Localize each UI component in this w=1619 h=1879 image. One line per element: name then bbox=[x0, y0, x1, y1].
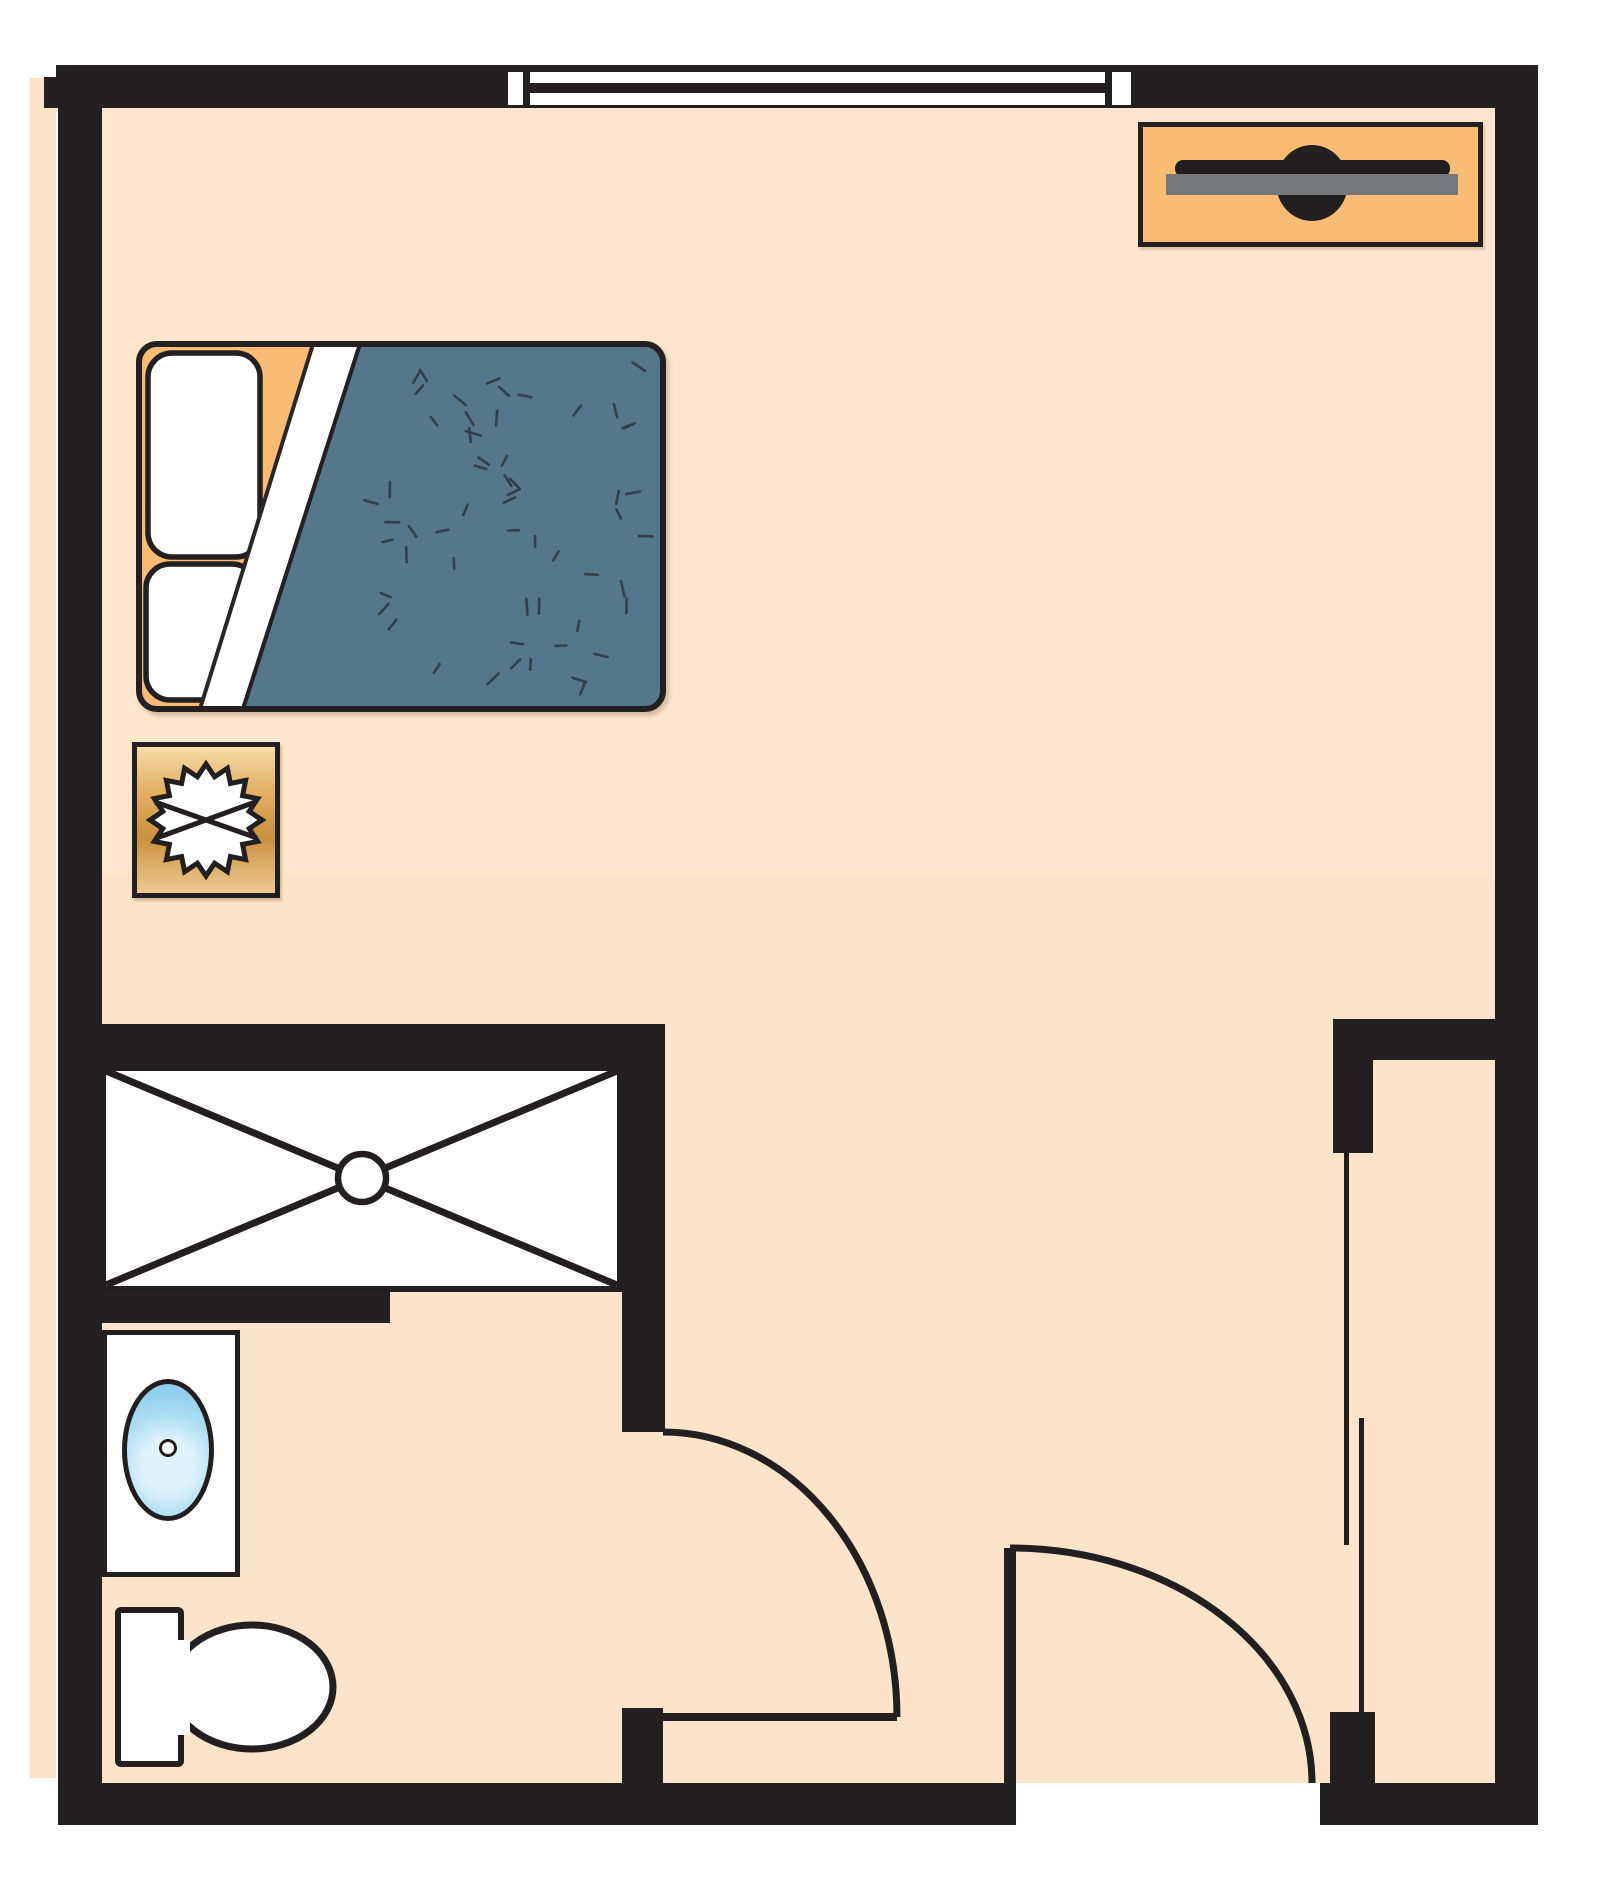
entry-door-swing-arc bbox=[1010, 1548, 1312, 1783]
floor-plan bbox=[0, 0, 1619, 1879]
bathroom-door-swing-arc bbox=[663, 1432, 897, 1717]
closet-sliding-door-panel bbox=[1359, 1418, 1364, 1713]
entry-door-leaf bbox=[1004, 1548, 1016, 1783]
doors-layer bbox=[0, 0, 1619, 1879]
bathroom-door-leaf bbox=[663, 1713, 897, 1721]
closet-sliding-door-panel bbox=[1344, 1153, 1349, 1545]
